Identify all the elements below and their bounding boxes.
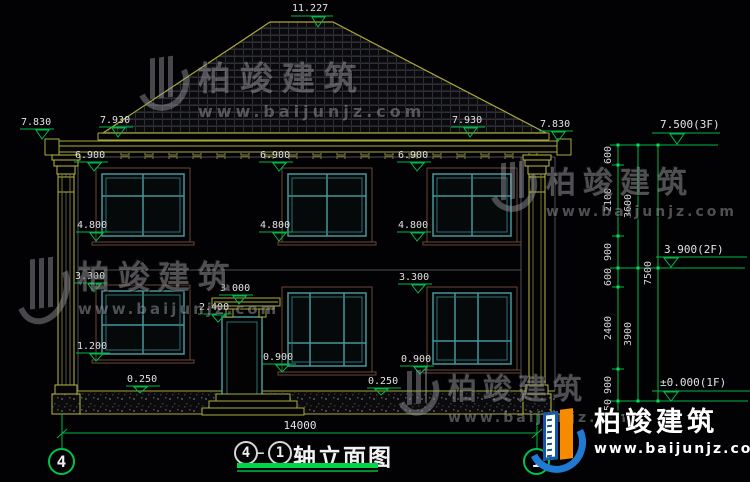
watermark-brand: 柏竣建筑 — [78, 252, 279, 298]
watermark-logo-icon — [488, 158, 538, 214]
level-win2-head-mid: 6.900 — [260, 150, 290, 161]
level-win2-sill-mid: 4.800 — [260, 220, 290, 231]
level-ridge: 11.227 — [292, 3, 328, 14]
dim-total-width: 14000 — [272, 419, 328, 432]
watermark-logo-icon — [16, 252, 70, 328]
watermark-logo-icon — [136, 52, 190, 114]
watermark-texts: 柏竣建筑 www.baijunjz.com — [198, 52, 425, 121]
dim-3900: 3900 — [623, 312, 635, 356]
level-win2-head-left: 6.900 — [75, 150, 105, 161]
level-win1-head-right: 3.300 — [399, 272, 429, 283]
level-win2-head-right: 6.900 — [398, 150, 428, 161]
level-eave-outer-left: 7.830 — [21, 117, 51, 128]
entry-door — [222, 317, 262, 400]
level-win1-sill-mid: 0.900 — [263, 352, 293, 363]
title-separator: — — [256, 446, 264, 461]
watermark-brand: 柏竣建筑 — [198, 52, 425, 100]
watermark-top: 柏竣建筑 www.baijunjz.com — [136, 52, 425, 121]
watermark-right: 柏竣建筑 www.baijunjz.com — [488, 158, 737, 220]
window-2f-left — [102, 174, 184, 236]
window-1f-mid — [288, 293, 366, 366]
logo-texts: 柏竣建筑 www.baijunjz.com — [594, 408, 750, 457]
watermark-url: www.baijunjz.com — [78, 300, 279, 318]
watermark-url: www.baijunjz.com — [546, 204, 737, 220]
logo-url: www.baijunjz.com — [594, 441, 750, 457]
level-eave-inner-right: 7.930 — [452, 115, 482, 126]
entry-steps — [202, 394, 304, 415]
level-eave-inner-left: 7.930 — [100, 115, 130, 126]
window-1f-right — [433, 293, 511, 364]
level-win1-sill-far-left: 1.200 — [77, 341, 107, 352]
site-logo: 柏竣建筑 www.baijunjz.com — [528, 408, 750, 476]
watermark-texts: 柏竣建筑 www.baijunjz.com — [78, 252, 279, 318]
watermark-brand: 柏竣建筑 — [448, 366, 639, 408]
level-win1-sill-right: 0.900 — [401, 354, 431, 365]
level-eave-outer-right: 7.830 — [540, 119, 570, 130]
watermark-url: www.baijunjz.com — [198, 102, 425, 121]
dim-2400: 2400 — [603, 306, 615, 350]
logo-building-orange — [560, 409, 573, 461]
level-win2-sill-right: 4.800 — [398, 220, 428, 231]
dim-600-b: 600 — [603, 255, 615, 299]
level-plinth-left: 0.250 — [127, 374, 157, 385]
window-2f-mid — [288, 174, 366, 236]
title-axis-circle-left: 4 — [234, 441, 258, 465]
logo-building-blue — [543, 411, 558, 460]
level-floor1: ±0.000(1F) — [660, 377, 726, 388]
title-axis-circle-right: 1 — [268, 441, 292, 465]
watermark-brand: 柏竣建筑 — [546, 158, 737, 202]
watermark-logo-icon — [396, 366, 440, 418]
dim-7500: 7500 — [643, 251, 655, 295]
cad-elevation-drawing: 11.227 7.830 7.930 7.930 7.830 6.900 6.9… — [0, 0, 750, 482]
baijun-logo-icon — [528, 408, 586, 476]
watermark-left: 柏竣建筑 www.baijunjz.com — [16, 252, 279, 328]
level-floor2: 3.900(2F) — [664, 244, 724, 255]
axis-bubble-4: 4 — [48, 448, 75, 475]
level-plinth-right: 0.250 — [368, 376, 398, 387]
watermark-texts: 柏竣建筑 www.baijunjz.com — [546, 158, 737, 220]
level-floor3: 7.500(3F) — [660, 119, 720, 130]
title-underline-thick — [237, 463, 378, 468]
title-underline-thin — [237, 470, 378, 472]
eave-cornice — [45, 133, 571, 159]
level-win2-sill-left: 4.800 — [77, 220, 107, 231]
logo-brand: 柏竣建筑 — [594, 408, 750, 438]
